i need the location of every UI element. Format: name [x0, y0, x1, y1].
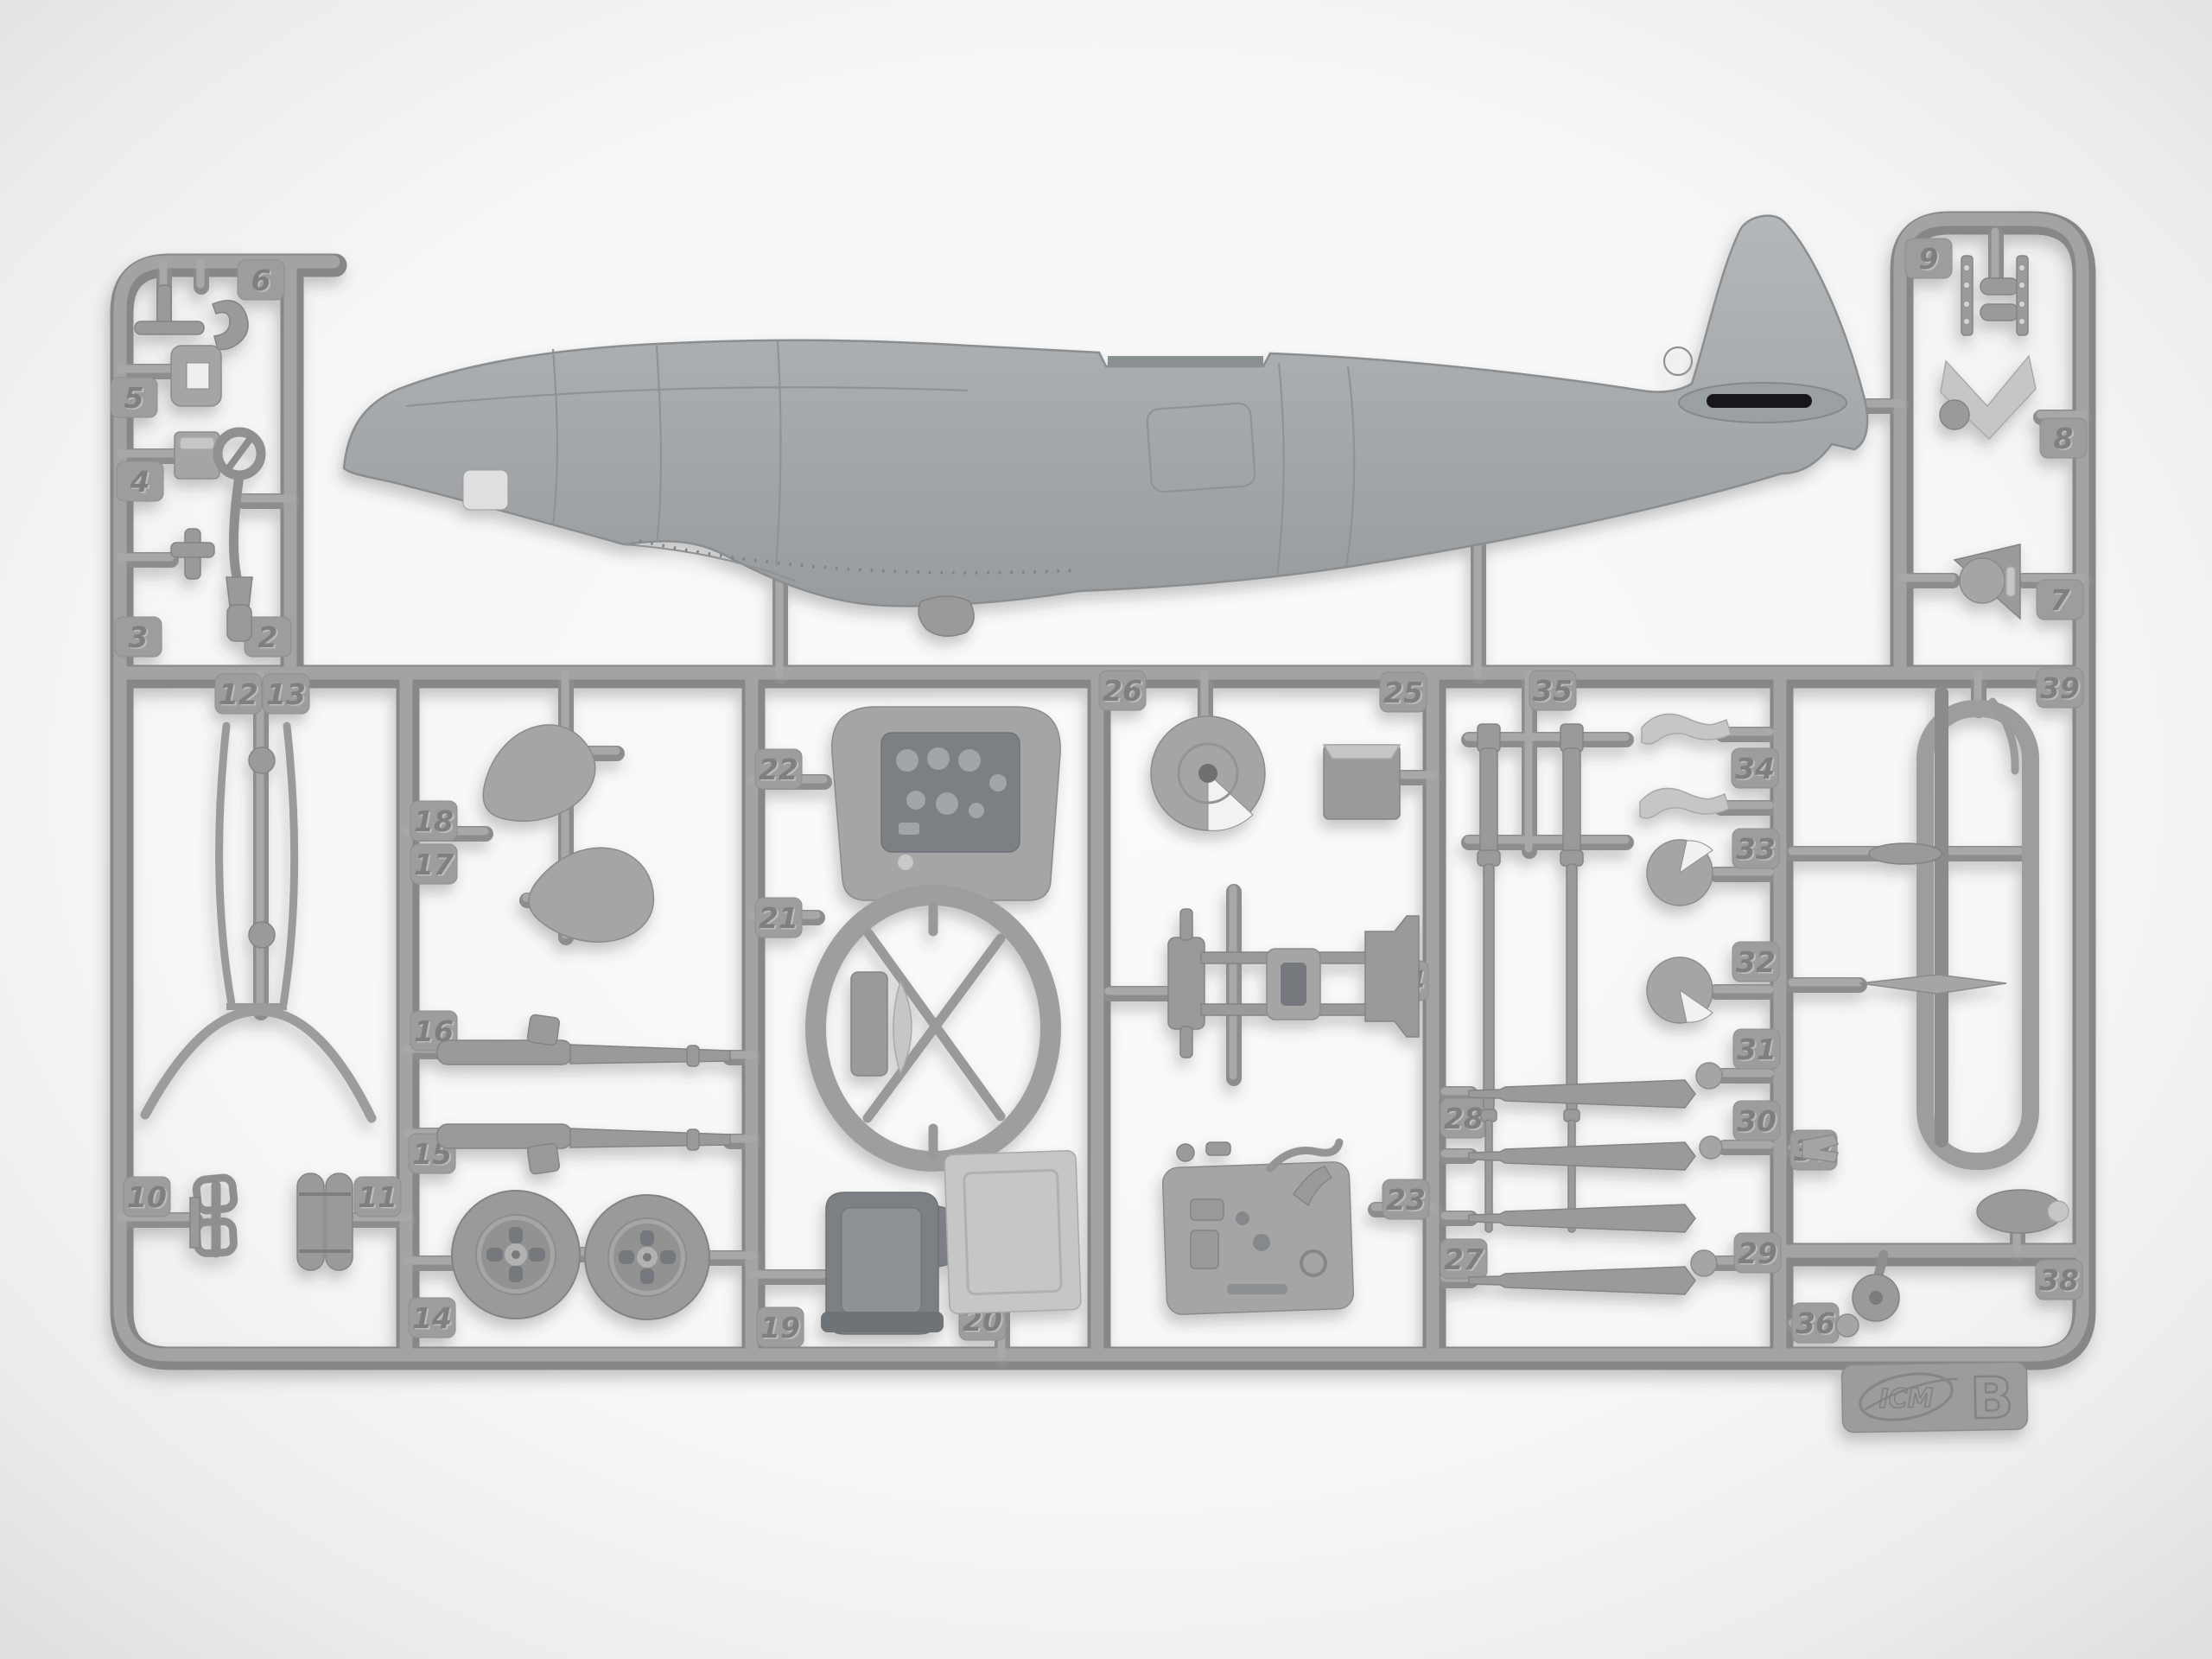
part-number-text: 39 [2040, 671, 2080, 705]
part-number-tab: 1010 [124, 1177, 170, 1217]
part-number-text: 22 [759, 753, 798, 786]
part-number-tab: 3636 [1792, 1303, 1839, 1343]
part-number-tab: 77 [2037, 580, 2083, 620]
sprue-photo: 2233445566778899101011111212131314141515… [0, 0, 2212, 1659]
stabilizer-slot [1707, 394, 1812, 408]
part-number-tab: 3838 [2036, 1260, 2082, 1300]
part-number-text: 14 [412, 1301, 452, 1335]
part-number-text: 25 [1383, 676, 1423, 709]
notched-disc-part [1647, 957, 1713, 1023]
part-number-tab: 2323 [1382, 1179, 1429, 1219]
part-number-text: 32 [1736, 945, 1776, 979]
part-number-text: 12 [219, 677, 258, 711]
part-number-text: 9 [1919, 242, 1939, 276]
cockpit-sidewall-panel [1162, 1142, 1354, 1315]
ball-part [1700, 1136, 1722, 1159]
part-number-tab: 2727 [1440, 1239, 1487, 1279]
part-number-text: 36 [1796, 1306, 1835, 1340]
part-number-tab: 3333 [1732, 829, 1779, 868]
part-number-tab: 3434 [1732, 748, 1778, 788]
notched-disc-part [1647, 840, 1713, 906]
part-number-tab: 55 [111, 378, 157, 417]
part-number-text: 3 [129, 620, 149, 654]
part-number-text: 27 [1444, 1243, 1484, 1276]
sprue-frame-b: 2233445566778899101011111212131314141515… [111, 216, 2087, 1434]
oxygen-bottle [326, 1173, 353, 1270]
part-number-text: 11 [358, 1180, 397, 1214]
part-number-tab: 1111 [354, 1177, 401, 1217]
part-number-tab: 2121 [755, 898, 802, 938]
main-wheel [585, 1195, 709, 1319]
cockpit-sill-notch [1108, 356, 1263, 367]
part-number-tab: 1313 [263, 674, 309, 714]
part-number-tab: 1212 [215, 674, 262, 714]
part-number-tab: 33 [115, 617, 162, 657]
part-number-text: 23 [1386, 1183, 1426, 1217]
brand-plate: ICM B [1841, 1362, 2027, 1434]
part-number-text: 33 [1736, 832, 1776, 866]
part-number-text: 7 [2050, 583, 2070, 617]
main-wheel [452, 1191, 580, 1319]
ball-part [1696, 1063, 1722, 1089]
part-number-tab: 88 [2040, 418, 2087, 458]
part-number-tab: 3030 [1733, 1101, 1780, 1141]
part-number-text: 10 [127, 1180, 167, 1214]
part-number-text: 28 [1444, 1102, 1484, 1135]
part-number-tab: 1818 [410, 801, 457, 841]
control-stick-shaft [233, 475, 239, 577]
instrument-panel-bulkhead [832, 707, 1060, 900]
ball-part [1836, 1314, 1859, 1337]
part-number-tab: 2222 [755, 749, 802, 789]
equipment-box [1324, 745, 1400, 819]
part-number-tab: 99 [1905, 238, 1952, 278]
photo-canvas: 2233445566778899101011111212131314141515… [0, 0, 2212, 1659]
part-number-text: 29 [1738, 1236, 1777, 1270]
part-number-text: 21 [759, 901, 798, 935]
part-number-text: 8 [2054, 422, 2074, 455]
part-number-text: 34 [1735, 752, 1775, 785]
part-number-text: 6 [251, 264, 271, 297]
ball-part [1691, 1250, 1717, 1276]
carburetor-intake [918, 596, 974, 636]
sprue-letter: B [1969, 1364, 2014, 1432]
part-number-text: 26 [1103, 674, 1142, 708]
part-number-tab: 1717 [410, 844, 457, 884]
part-number-text: 2 [258, 620, 278, 654]
part-number-text: 5 [124, 381, 144, 415]
part-number-tab: 1414 [409, 1298, 455, 1338]
part-number-tab: 44 [117, 461, 163, 501]
part-number-text: 30 [1737, 1104, 1777, 1138]
part-number-text: 17 [414, 848, 454, 881]
part-number-text: 4 [130, 465, 150, 499]
part-number-text: 13 [266, 677, 306, 711]
part-number-text: 31 [1737, 1033, 1777, 1066]
oxygen-bottle [297, 1173, 324, 1270]
part-number-tab: 1919 [757, 1307, 804, 1347]
wheel-hub-disc [1151, 716, 1265, 830]
brand-logo-text: ICM [1878, 1383, 1934, 1414]
part-number-tab: 66 [238, 260, 284, 300]
part-number-text: 38 [2039, 1263, 2079, 1297]
nose-opening [463, 470, 508, 510]
part-number-tab: 3939 [2037, 668, 2083, 708]
part-number-tab: 2828 [1440, 1098, 1487, 1138]
part-number-tab: 2626 [1099, 671, 1146, 710]
part-number-text: 19 [760, 1311, 800, 1344]
part-number-text: 18 [414, 804, 454, 838]
part-number-tab: 2525 [1380, 672, 1427, 712]
part-number-tab: 3232 [1732, 942, 1779, 982]
part-number-tab: 3535 [1529, 671, 1576, 710]
part-number-text: 35 [1533, 674, 1573, 708]
access-door-panel [944, 1150, 1081, 1313]
part-number-tab: 3131 [1733, 1029, 1780, 1069]
part-number-tab: 2929 [1734, 1233, 1781, 1273]
